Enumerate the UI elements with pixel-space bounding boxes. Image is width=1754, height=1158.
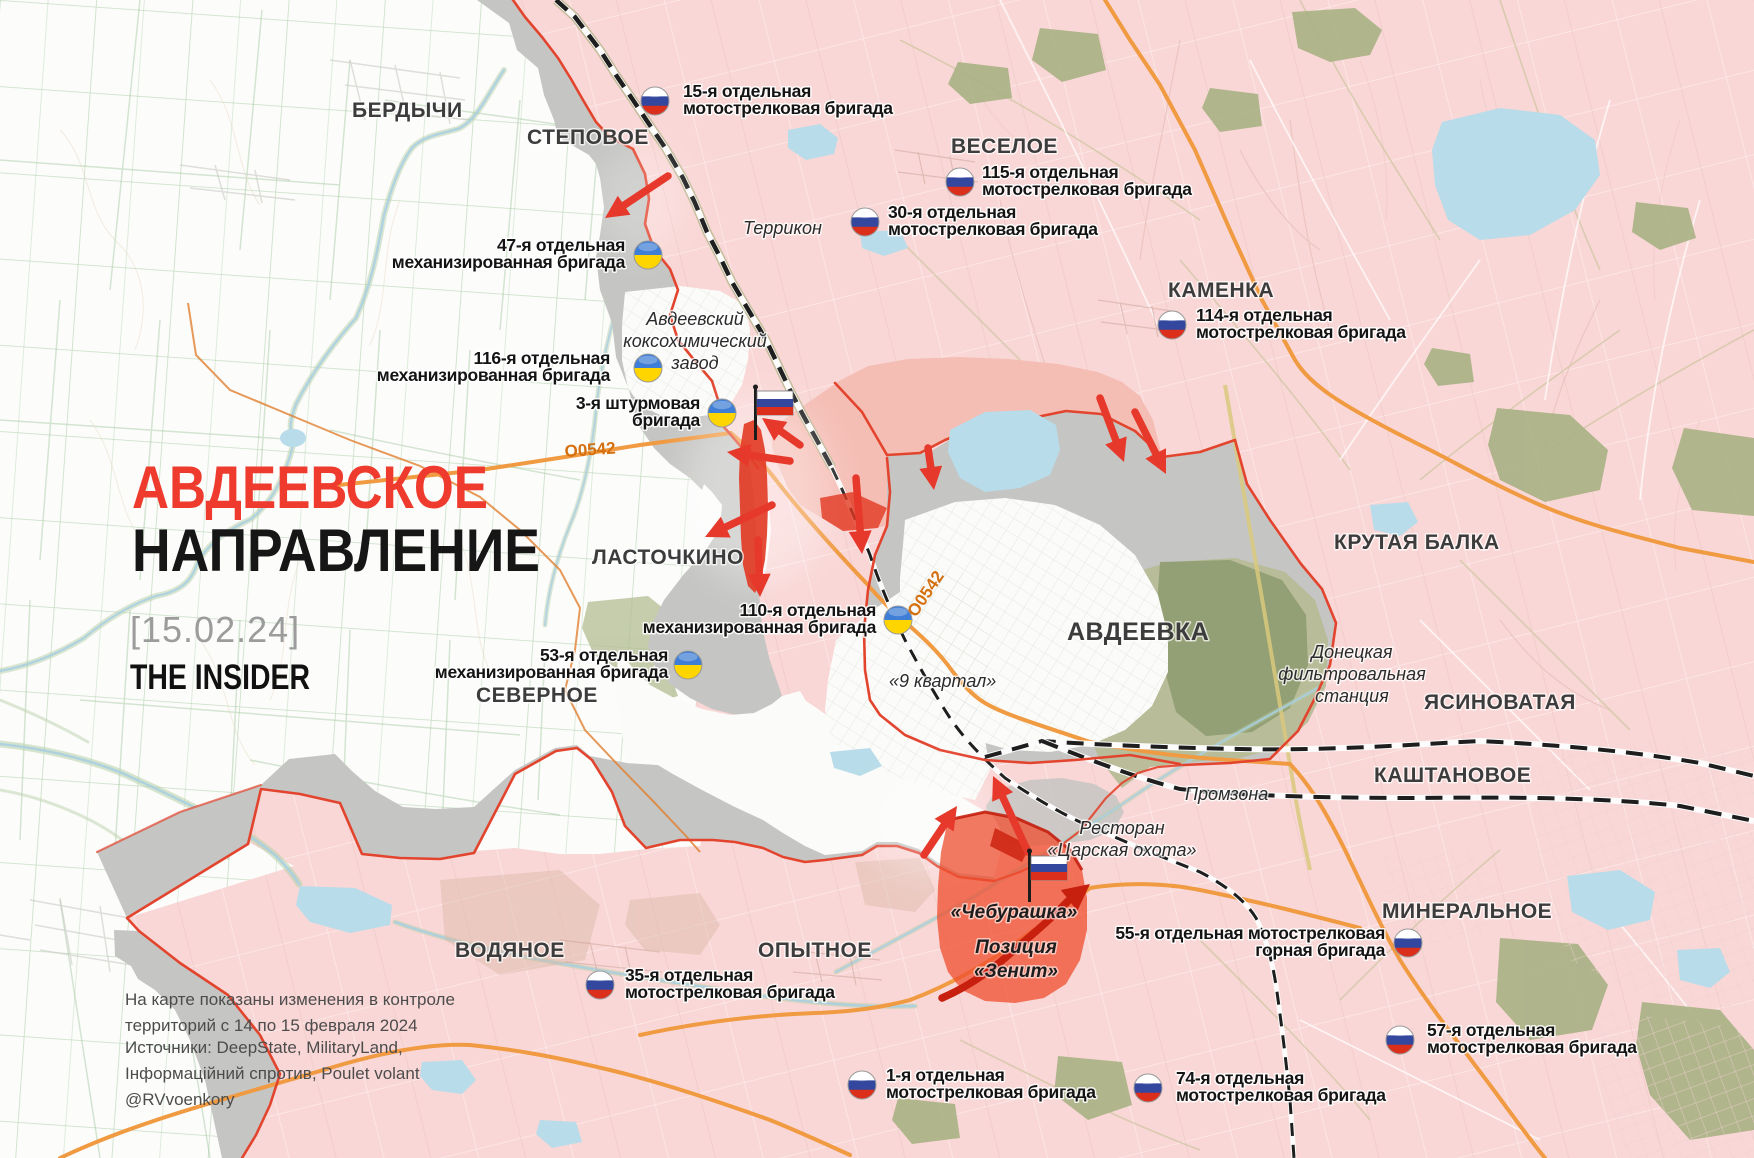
svg-text:ОПЫТНОЕ: ОПЫТНОЕ <box>758 939 872 962</box>
svg-text:«Чебурашка»: «Чебурашка» <box>951 902 1078 923</box>
svg-text:механизированная бригада: механизированная бригада <box>392 252 626 272</box>
svg-text:«Зенит»: «Зенит» <box>974 961 1058 982</box>
svg-text:ЛАСТОЧКИНО: ЛАСТОЧКИНО <box>592 546 744 569</box>
svg-text:мотострелковая бригада: мотострелковая бригада <box>625 982 835 1002</box>
svg-text:КАМЕНКА: КАМЕНКА <box>1168 279 1274 302</box>
svg-text:Авдеевский: Авдеевский <box>645 309 744 329</box>
svg-text:мотострелковая бригада: мотострелковая бригада <box>1196 322 1406 342</box>
svg-text:Источники: DeepState, Military: Источники: DeepState, MilitaryLand, <box>125 1038 403 1057</box>
svg-text:На карте показаны изменения в: На карте показаны изменения в контроле <box>125 990 455 1009</box>
svg-text:завод: завод <box>670 353 718 373</box>
svg-text:бригада: бригада <box>632 410 701 430</box>
svg-text:горная бригада: горная бригада <box>1255 940 1385 960</box>
svg-text:мотострелковая бригада: мотострелковая бригада <box>888 219 1098 239</box>
svg-text:ВОДЯНОЕ: ВОДЯНОЕ <box>455 939 565 962</box>
svg-text:АВДЕЕВКА: АВДЕЕВКА <box>1067 618 1209 646</box>
svg-text:мотострелковая бригада: мотострелковая бригада <box>886 1082 1096 1102</box>
svg-text:АВДЕЕВСКОЕ: АВДЕЕВСКОЕ <box>132 454 488 521</box>
svg-text:БЕРДЫЧИ: БЕРДЫЧИ <box>352 99 463 122</box>
svg-text:Інформаційний спротив, Poulet: Інформаційний спротив, Poulet volant <box>125 1064 420 1083</box>
svg-text:мотострелковая бригада: мотострелковая бригада <box>982 179 1192 199</box>
svg-text:станция: станция <box>1315 686 1389 706</box>
svg-text:территорий с 14 по 15 февраля: территорий с 14 по 15 февраля 2024 <box>125 1016 418 1035</box>
svg-text:[15.02.24]: [15.02.24] <box>130 609 300 650</box>
svg-text:СТЕПОВОЕ: СТЕПОВОЕ <box>527 126 649 149</box>
svg-text:фильтровальная: фильтровальная <box>1278 664 1426 684</box>
svg-text:ВЕСЕЛОЕ: ВЕСЕЛОЕ <box>951 135 1058 158</box>
svg-text:мотострелковая бригада: мотострелковая бригада <box>683 98 893 118</box>
svg-text:THE INSIDER: THE INSIDER <box>130 658 310 697</box>
svg-text:КАШТАНОВОЕ: КАШТАНОВОЕ <box>1374 764 1531 787</box>
svg-text:«9 квартал»: «9 квартал» <box>889 671 996 691</box>
svg-text:@RVvoenkory: @RVvoenkory <box>125 1090 235 1109</box>
svg-text:мотострелковая бригада: мотострелковая бригада <box>1176 1085 1386 1105</box>
svg-text:Позиция: Позиция <box>975 937 1057 958</box>
svg-text:О0542: О0542 <box>564 438 616 461</box>
svg-text:механизированная бригада: механизированная бригада <box>435 662 669 682</box>
svg-text:механизированная бригада: механизированная бригада <box>643 617 877 637</box>
svg-text:ЯСИНОВАТАЯ: ЯСИНОВАТАЯ <box>1424 691 1576 714</box>
svg-text:НАПРАВЛЕНИЕ: НАПРАВЛЕНИЕ <box>132 517 540 584</box>
svg-text:КРУТАЯ БАЛКА: КРУТАЯ БАЛКА <box>1334 531 1500 554</box>
svg-text:Промзона: Промзона <box>1185 784 1268 804</box>
svg-text:мотострелковая бригада: мотострелковая бригада <box>1427 1037 1637 1057</box>
svg-text:коксохимический: коксохимический <box>623 331 766 351</box>
svg-text:СЕВЕРНОЕ: СЕВЕРНОЕ <box>476 684 598 707</box>
svg-text:Ресторан: Ресторан <box>1079 818 1164 838</box>
svg-text:Террикон: Террикон <box>743 218 822 238</box>
svg-text:«Царская охота»: «Царская охота» <box>1047 840 1196 860</box>
svg-text:МИНЕРАЛЬНОЕ: МИНЕРАЛЬНОЕ <box>1382 900 1552 923</box>
svg-text:механизированная бригада: механизированная бригада <box>377 365 611 385</box>
svg-text:Донецкая: Донецкая <box>1309 642 1392 662</box>
